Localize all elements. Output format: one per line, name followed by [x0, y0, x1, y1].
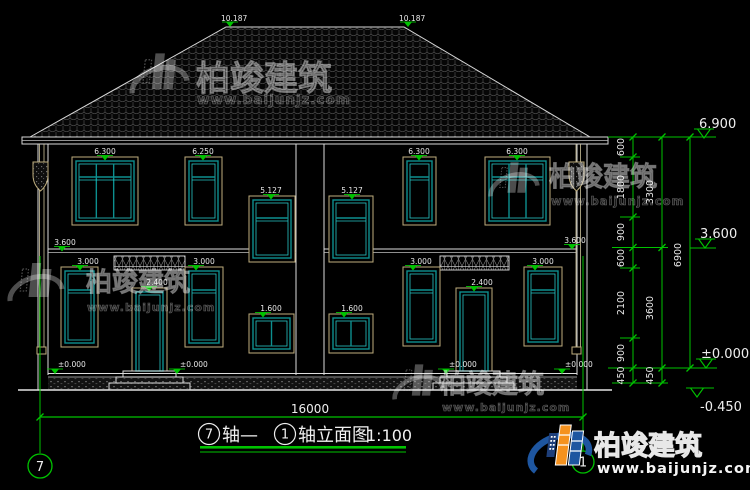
- elevation-label: 3.000: [77, 257, 99, 266]
- title-axis-number: 1: [281, 428, 289, 443]
- elevation-label: ±0.000: [449, 360, 477, 369]
- dim-text: 2100: [616, 291, 627, 315]
- level-label: 6.900: [699, 117, 736, 132]
- brand-url: www.baijunjz.com: [597, 461, 750, 477]
- cad-elevation-drawing: 10.187 10.187 6.300 6.250 5.127 5.127 6.…: [0, 0, 750, 490]
- elevation-label: ±0.000: [58, 360, 86, 369]
- title-text: 轴—: [222, 425, 258, 446]
- dim-text: 600: [616, 249, 627, 267]
- title-text: 轴立面图: [298, 425, 370, 446]
- window-frame: [185, 157, 222, 225]
- elevation-label: 5.127: [260, 186, 282, 195]
- level-mark-icon: [687, 388, 707, 397]
- elevation-label: 1.600: [260, 304, 282, 313]
- downspout-elbow: [572, 347, 581, 354]
- door-frame: [456, 288, 492, 371]
- dim-text: 900: [616, 223, 627, 241]
- level-label: ±0.000: [701, 347, 749, 362]
- elevation-label: 6.300: [408, 147, 430, 156]
- drawing-title: 7 轴— 1 轴立面图 1:100: [199, 424, 413, 453]
- elevation-label: ±0.000: [180, 360, 208, 369]
- watermark-logo-icon: [10, 263, 62, 301]
- title-axis-number: 7: [205, 428, 213, 443]
- elevation-label: ±0.000: [565, 360, 593, 369]
- title-underline: [200, 446, 406, 449]
- elevation-label: 3.000: [410, 257, 432, 266]
- elevation-label: 5.127: [341, 186, 363, 195]
- axis-number: 7: [36, 460, 44, 475]
- dim-text: 6900: [673, 243, 684, 267]
- window-frame: [524, 267, 562, 346]
- dim-text: 600: [616, 138, 627, 156]
- elevation-label: 3.000: [532, 257, 554, 266]
- right-level-markers: 6.900 3.600 ±0.000 -0.450: [686, 117, 749, 415]
- window-frame: [403, 267, 440, 346]
- window-frame: [72, 157, 138, 225]
- watermark-brand: 柏竣建筑: [549, 161, 657, 193]
- leader-head-ornament: [33, 162, 48, 191]
- elevation-label: 3.600: [564, 236, 586, 245]
- dim-text: 450: [616, 366, 627, 384]
- elevation-label: 6.300: [94, 147, 116, 156]
- elevation-label: 6.300: [506, 147, 528, 156]
- dim-text: 450: [645, 366, 656, 384]
- elevation-label: 1.600: [341, 304, 363, 313]
- watermark-brand: 柏竣建筑: [440, 369, 544, 400]
- elevation-label: 2.400: [471, 278, 493, 287]
- level-label: -0.450: [700, 400, 742, 415]
- title-scale: 1:100: [366, 426, 412, 445]
- dim-text: 900: [616, 344, 627, 362]
- ridge-elevation-marks: 10.187 10.187: [221, 14, 425, 27]
- dim-text: 3600: [645, 296, 656, 320]
- level-label: 3.600: [700, 227, 737, 242]
- window-frame: [403, 157, 436, 225]
- elevation-label: 3.000: [193, 257, 215, 266]
- watermark-url: www.baijunjz.com: [442, 401, 570, 414]
- overall-dim-text: 16000: [291, 402, 329, 416]
- downspout-elbow: [37, 347, 46, 354]
- elevation-label: 6.250: [192, 147, 214, 156]
- canopy-lattice: [440, 256, 509, 270]
- watermark-url: www.baijunjz.com: [87, 301, 215, 314]
- brand-name: 柏竣建筑: [594, 430, 702, 462]
- elevation-label: 3.600: [54, 238, 76, 247]
- watermark-url: www.baijunjz.com: [551, 194, 684, 208]
- watermark-brand: 柏竣建筑: [86, 267, 190, 298]
- footer-brand: 柏竣建筑 www.baijunjz.com: [531, 425, 750, 477]
- watermark-url: www.baijunjz.com: [197, 92, 351, 108]
